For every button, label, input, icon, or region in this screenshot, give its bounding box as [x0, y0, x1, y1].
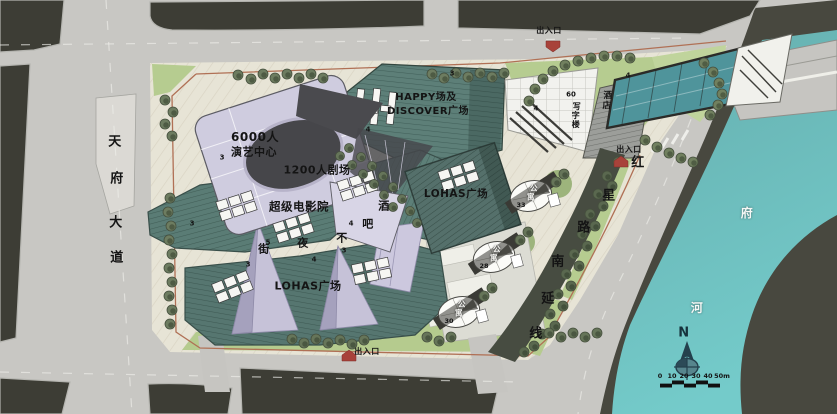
tree-icon: [699, 58, 709, 68]
tree-icon: [258, 69, 268, 79]
tree-icon: [167, 277, 177, 287]
apartment-label-char: 公: [493, 245, 501, 253]
road-left-label-char: 大: [109, 217, 123, 230]
tree-icon: [311, 334, 321, 344]
floor-number-label: 3: [220, 155, 225, 162]
tree-icon: [652, 142, 662, 152]
city-block: [0, 0, 64, 52]
scale-tick-label: 30: [691, 373, 700, 380]
tree-icon: [165, 193, 175, 203]
entrance-arrow: [546, 41, 560, 52]
tree-icon: [246, 74, 256, 84]
road-left-label-char: 道: [110, 252, 124, 265]
tree-icon: [640, 135, 650, 145]
tree-icon: [439, 73, 449, 83]
tree-icon: [345, 144, 354, 153]
tree-icon: [422, 332, 432, 342]
floor-number-label: 5: [266, 240, 271, 247]
bar-street-label-char: 夜: [297, 238, 309, 249]
tree-icon: [398, 195, 407, 204]
tree-icon: [585, 209, 595, 219]
apartment-label-char: 寓: [527, 193, 535, 201]
road-left-label-char: 天: [108, 136, 122, 149]
bar-street-label-char: 酒: [378, 201, 390, 212]
road-left-label-char: 府: [110, 173, 124, 186]
tree-icon: [560, 60, 570, 70]
tree-icon: [463, 72, 473, 82]
office-label-char: 字: [572, 112, 581, 120]
apartment-label-char: 公: [458, 300, 466, 308]
tree-icon: [705, 110, 715, 120]
tree-icon: [336, 152, 345, 161]
tree-icon: [359, 170, 368, 179]
city-block: [150, 0, 424, 30]
apartment-label-char: 公: [530, 184, 538, 192]
tree-icon: [323, 338, 333, 348]
tree-icon: [282, 69, 292, 79]
tree-icon: [515, 235, 525, 245]
tree-icon: [294, 73, 304, 83]
tree-icon: [717, 89, 727, 99]
tree-icon: [586, 53, 596, 63]
tree-icon: [368, 162, 377, 171]
tree-icon: [519, 347, 529, 357]
tree-icon: [160, 95, 170, 105]
tree-icon: [529, 341, 539, 351]
hotel-label-char: 酒: [603, 92, 612, 101]
tree-icon: [233, 70, 243, 80]
north-label: N: [678, 327, 689, 340]
city-block: [458, 0, 760, 34]
apartment-label-char: 寓: [455, 309, 463, 317]
apartment-label-char: 寓: [490, 254, 498, 262]
site-plan-drawing: [0, 0, 837, 414]
floor-number-label: 3: [246, 262, 251, 269]
hotel-label-char: 店: [602, 102, 611, 111]
tree-icon: [592, 328, 602, 338]
theater-1200-label: 1200人剧场: [283, 165, 350, 176]
entrance-label-east: 出入口: [616, 146, 642, 154]
tree-icon: [524, 96, 534, 106]
apartment-floors-label: 30: [444, 318, 453, 325]
tree-icon: [370, 180, 379, 189]
road-right-label-char: 线: [529, 328, 543, 341]
floor-number-label: 3: [342, 248, 347, 255]
tree-icon: [299, 338, 309, 348]
tree-icon: [664, 148, 674, 158]
floor-number-label: 3: [190, 221, 195, 228]
tree-icon: [427, 69, 437, 79]
tree-icon: [487, 283, 497, 293]
tree-icon: [389, 183, 398, 192]
tree-icon: [406, 207, 415, 216]
tree-icon: [270, 73, 280, 83]
tree-icon: [556, 332, 566, 342]
river-label-char: 河: [691, 302, 704, 314]
tree-icon: [568, 328, 578, 338]
tree-icon: [306, 69, 316, 79]
tree-icon: [559, 169, 569, 179]
tree-icon: [335, 335, 345, 345]
floor-number-label: 4: [349, 221, 354, 228]
tree-icon: [163, 207, 173, 217]
lohas-east-label: LOHAS广场: [424, 189, 488, 200]
tree-icon: [676, 153, 686, 163]
bar-street-label-char: 不: [336, 233, 348, 244]
site-plan-map: 6000人 演艺中心 1200人剧场 超级电影院 HAPPY场及 DISCOVE…: [0, 0, 837, 414]
road-right-label-char: 南: [551, 256, 565, 269]
tree-icon: [287, 334, 297, 344]
tree-icon: [167, 131, 177, 141]
performing-center-label-line2: 演艺中心: [231, 147, 277, 158]
tree-icon: [164, 235, 174, 245]
tree-icon: [166, 221, 176, 231]
scale-tick-label: 0: [658, 373, 663, 380]
tree-icon: [164, 263, 174, 273]
tree-icon: [580, 332, 590, 342]
tree-icon: [561, 269, 571, 279]
city-block: [0, 64, 30, 342]
office-label-char: 写: [573, 103, 582, 111]
tree-icon: [713, 100, 723, 110]
tree-icon: [688, 157, 698, 167]
tree-icon: [499, 68, 509, 78]
office-label-char: 楼: [572, 121, 581, 129]
tree-icon: [548, 66, 558, 76]
tree-icon: [446, 332, 456, 342]
tree-icon: [544, 328, 554, 338]
tree-icon: [165, 319, 175, 329]
river-label-char: 府: [741, 207, 754, 219]
tree-icon: [475, 68, 485, 78]
tree-icon: [413, 219, 422, 228]
scale-tick-label: 50m: [714, 373, 730, 380]
performing-center-label-line1: 6000人: [231, 131, 279, 143]
tree-icon: [167, 249, 177, 259]
tree-icon: [318, 73, 328, 83]
scale-tick-label: 10: [667, 373, 676, 380]
entrance-label-south: 出入口: [354, 348, 380, 356]
road-right-label-char: 延: [541, 293, 555, 306]
scale-tick-label: 20: [679, 373, 688, 380]
tree-icon: [551, 177, 561, 187]
tree-icon: [167, 305, 177, 315]
road-right-label-char: 红: [631, 157, 645, 170]
tree-icon: [379, 172, 388, 181]
tree-icon: [714, 78, 724, 88]
tree-icon: [434, 336, 444, 346]
tree-icon: [625, 53, 635, 63]
floor-number-label: 4: [366, 127, 371, 134]
tree-icon: [164, 291, 174, 301]
tree-icon: [380, 191, 389, 200]
tree-icon: [599, 51, 609, 61]
cinema-label: 超级电影院: [269, 201, 329, 213]
floor-number-label: 4: [626, 73, 631, 80]
road-right-label-char: 星: [602, 190, 616, 203]
happy-plaza-label-line2: DISCOVER广场: [387, 107, 469, 117]
tree-icon: [530, 84, 540, 94]
tree-icon: [359, 335, 369, 345]
tree-icon: [590, 221, 600, 231]
happy-plaza-label-line1: HAPPY场及: [395, 93, 457, 103]
tree-icon: [566, 281, 576, 291]
tree-icon: [582, 241, 592, 251]
tree-icon: [708, 67, 718, 77]
tree-icon: [558, 301, 568, 311]
tree-icon: [168, 107, 178, 117]
city-block: [0, 378, 70, 414]
tree-icon: [487, 72, 497, 82]
bar-street-label-char: 吧: [362, 219, 374, 230]
scale-tick-label: 40: [703, 373, 712, 380]
tree-icon: [545, 309, 555, 319]
floor-number-label: 3: [450, 71, 455, 78]
apartment-floors-label: 33: [516, 202, 525, 209]
apartment-floors-label: 28: [479, 263, 488, 270]
city-block: [240, 368, 500, 414]
tree-icon: [160, 119, 170, 129]
tree-icon: [569, 249, 579, 259]
road-right-label-char: 路: [577, 222, 591, 235]
floor-number-label: 4: [312, 257, 317, 264]
tree-icon: [574, 261, 584, 271]
tree-icon: [479, 291, 489, 301]
floor-number-label: 4: [534, 106, 539, 113]
tree-icon: [389, 203, 398, 212]
tree-icon: [573, 56, 583, 66]
tree-icon: [538, 74, 548, 84]
tree-icon: [357, 153, 366, 162]
office-floors-label: 60: [566, 92, 576, 99]
lohas-south-label: LOHAS广场: [274, 281, 341, 292]
tree-icon: [523, 227, 533, 237]
entrance-label-top: 出入口: [536, 27, 562, 35]
tree-icon: [602, 171, 612, 181]
tree-icon: [612, 51, 622, 61]
